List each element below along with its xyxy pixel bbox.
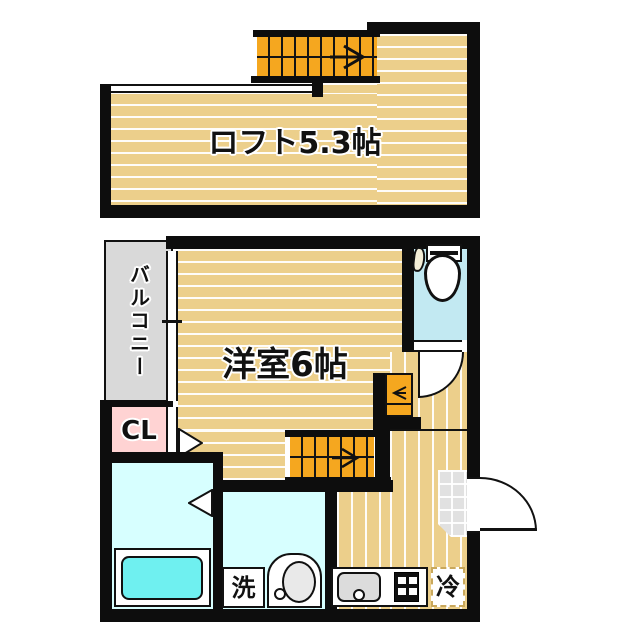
washing-machine-space: 洗	[222, 567, 265, 608]
closet: CL	[112, 407, 166, 454]
loft-top-wall	[367, 22, 480, 34]
loft-label: ロフト5.3帖	[150, 127, 440, 161]
washbasin-bowl	[282, 561, 316, 603]
closet-door-strip	[166, 407, 178, 454]
landing-tread-line	[387, 403, 411, 405]
stairs-lower-top-wall	[285, 430, 383, 437]
loft-railing	[106, 84, 315, 93]
washbasin-icon	[267, 553, 322, 608]
loft-stair-top-wall	[253, 30, 380, 37]
balcony-window	[166, 251, 178, 401]
entrance-door-swing-icon	[480, 477, 537, 531]
main-right-wall	[467, 236, 480, 622]
bathtub-icon	[121, 556, 203, 600]
bath-top-wall	[100, 452, 223, 463]
bath-door-wedge-icon	[188, 489, 213, 517]
loft-floor-right	[377, 34, 467, 206]
stair-up-arrow-icon	[327, 42, 373, 72]
stair-right-arrow-icon	[330, 446, 366, 470]
toilet-left-wall	[402, 236, 414, 352]
room-label: 洋室6帖	[185, 346, 385, 384]
loft-left-wall	[100, 84, 111, 218]
main-bottom-wall	[100, 609, 480, 622]
stove-icon	[394, 572, 419, 602]
kitchen-sink-drain	[353, 589, 365, 601]
hall-divider-line	[390, 429, 467, 431]
washbasin-tap	[274, 588, 286, 600]
stair-left-arrow-icon	[389, 384, 409, 402]
entrance-door-frame	[467, 477, 480, 533]
loft-railing-post	[312, 76, 323, 97]
window-tick	[162, 320, 182, 323]
room-floor	[178, 249, 402, 430]
toilet-door-strip	[414, 340, 462, 352]
loft-right-wall	[467, 22, 480, 218]
floor-plan-canvas: ロフト5.3帖 バルコニー CL	[0, 0, 640, 640]
genkan-tile-area	[438, 470, 467, 537]
main-left-wall	[100, 400, 112, 622]
loft-floor-understair	[318, 83, 377, 93]
loft-bottom-wall	[100, 205, 480, 218]
refrigerator-space: 冷	[431, 567, 465, 607]
hall-left-wall	[375, 415, 390, 492]
